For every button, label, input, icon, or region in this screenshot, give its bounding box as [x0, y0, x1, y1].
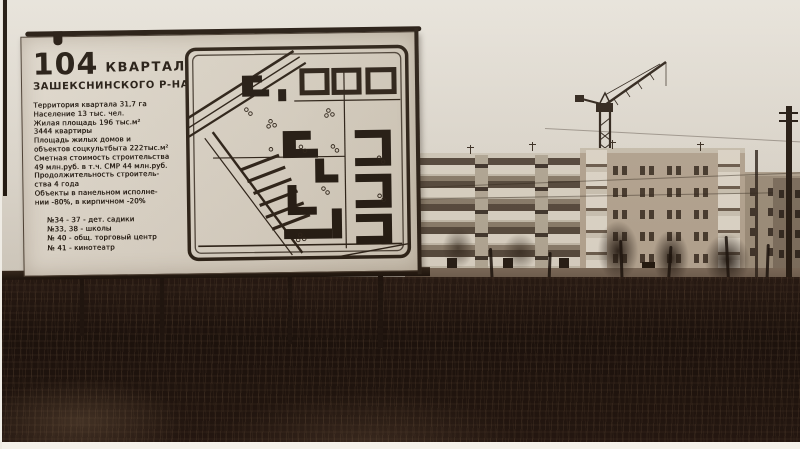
utility-pole-right: [786, 106, 792, 306]
quarter-number: 104: [33, 51, 99, 80]
foreground-weeds: [0, 277, 800, 445]
district-name: ЗАШЕКСНИНСКОГО Р-НА: [33, 80, 183, 93]
billboard-text-column: 104 КВАРТАЛ ЗАШЕКСНИНСКОГО Р-НА Территор…: [33, 50, 186, 254]
utility-pole-thin: [755, 150, 758, 290]
billboard-sign: 104 КВАРТАЛ ЗАШЕКСНИНСКОГО Р-НА Территор…: [20, 31, 421, 277]
photo-soviet-construction-site: 104 КВАРТАЛ ЗАШЕКСНИНСКОГО Р-НА Территор…: [0, 0, 800, 449]
site-plan-map: [181, 37, 416, 268]
billboard-leg: [80, 276, 84, 336]
photo-border-left: [0, 0, 2, 449]
sapling-bush: [438, 222, 478, 274]
billboard-title: 104 КВАРТАЛ: [33, 50, 183, 80]
stat-line: нии -80%, в кирпичном -20%: [35, 196, 185, 207]
utility-pole-left: [3, 0, 7, 196]
billboard-leg: [378, 276, 383, 348]
quarter-word: КВАРТАЛ: [105, 59, 186, 78]
photo-border-bottom: [0, 442, 800, 449]
rooftop-antenna: [700, 142, 701, 151]
billboard-leg: [160, 276, 164, 340]
rooftop-antenna: [470, 145, 471, 154]
building-legend: №34 - 37 - дет. садики №33, 38 - школы №…: [35, 214, 186, 254]
sapling-bush: [498, 228, 542, 276]
legend-line: № 41 - кинотеатр: [47, 242, 185, 253]
rooftop-antenna: [612, 140, 613, 149]
billboard-leg: [288, 276, 292, 344]
rooftop-antenna: [532, 142, 533, 151]
quarter-stats: Территория квартала 31,7 га Население 13…: [33, 100, 184, 208]
